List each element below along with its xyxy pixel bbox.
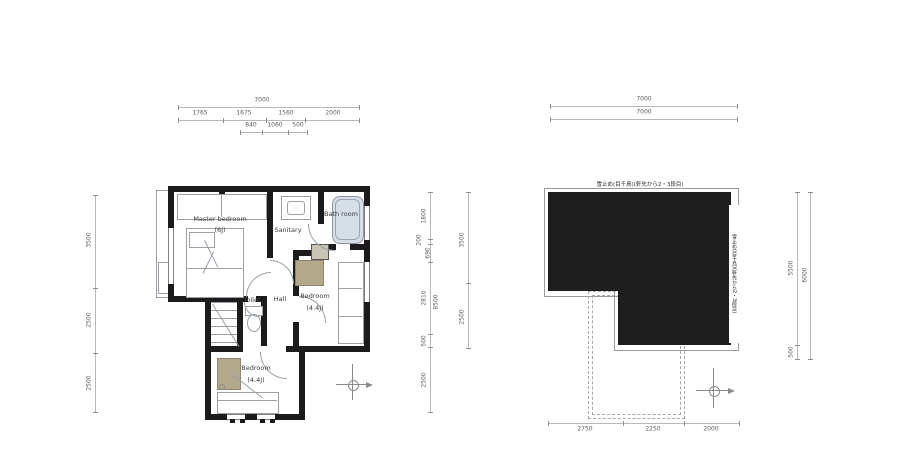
desk <box>295 260 324 286</box>
north-arrow-icon <box>366 382 373 388</box>
dim-label: 2000 <box>325 110 340 117</box>
wall <box>237 302 243 346</box>
dim-tick <box>684 421 685 426</box>
dim-tick <box>288 130 289 135</box>
dim-label: 500 <box>292 122 303 129</box>
dim-line <box>240 132 307 133</box>
dim-line <box>548 423 739 424</box>
dim-tick <box>795 359 800 360</box>
door-arc <box>246 272 271 297</box>
dim-label: 6000 <box>802 267 809 282</box>
dim-tick <box>623 421 624 426</box>
north-arrow-icon <box>728 388 735 394</box>
dim-line <box>178 107 360 108</box>
roof-area <box>618 291 731 345</box>
wall <box>318 192 324 224</box>
dim-tick <box>466 192 471 193</box>
dim-label: 2500 <box>459 309 466 324</box>
dim-label: 1560 <box>278 110 293 117</box>
dim-tick <box>808 359 813 360</box>
wall <box>299 352 305 420</box>
dim-label: 2750 <box>577 426 592 433</box>
dim-tick <box>795 192 800 193</box>
roof-note-top: 雪止め(目千鳥)(軒先から2・3段目) <box>596 180 683 188</box>
dim-label: 2500 <box>86 312 93 327</box>
dim-tick <box>428 412 433 413</box>
wall <box>205 414 227 420</box>
dim-tick <box>428 334 433 335</box>
wall <box>364 302 370 352</box>
dim-tick <box>305 118 306 123</box>
bed <box>338 262 364 344</box>
wall <box>245 414 257 420</box>
north-marker-circle <box>709 386 720 397</box>
roof-note-right: 雪止め(目千鳥)(軒先から2・3段目) <box>729 205 739 343</box>
window-stub <box>240 419 245 423</box>
dim-line <box>550 119 737 120</box>
dim-tick <box>466 348 471 349</box>
dim-label: 690 <box>425 247 432 258</box>
dim-label: 2250 <box>645 426 660 433</box>
wall <box>275 414 305 420</box>
dim-line <box>810 192 811 359</box>
dim-label: 2000 <box>703 426 718 433</box>
window <box>364 262 370 302</box>
dim-label: 3500 <box>86 232 93 247</box>
bed <box>217 392 279 414</box>
window-stub <box>270 419 275 423</box>
dim-line <box>95 195 96 412</box>
dim-label: 2500 <box>421 372 428 387</box>
dim-tick <box>93 353 98 354</box>
dim-tick <box>550 104 551 109</box>
floor-plan-sheet: 7000 1765 1675 1560 2000 840 1060 500 35… <box>0 0 900 458</box>
north-marker-circle <box>348 380 359 391</box>
blanket-line <box>186 268 242 269</box>
dim-line <box>430 192 431 412</box>
room-size-master-bedroom: (6J) <box>214 226 225 234</box>
dim-line <box>550 106 737 107</box>
dim-tick <box>307 130 308 135</box>
room-label-bedroom-lower: Bedroom <box>241 364 270 372</box>
wall <box>350 244 370 250</box>
dim-label: 200 <box>416 234 423 245</box>
room-label-sanitary: Sanitary <box>274 226 301 234</box>
window <box>364 206 370 240</box>
dim-tick <box>178 118 179 123</box>
dim-tick <box>737 117 738 122</box>
dim-label: 3500 <box>459 232 466 247</box>
wall <box>267 192 273 258</box>
dim-tick <box>428 347 433 348</box>
dim-label: 1675 <box>236 110 251 117</box>
room-size-bedroom-right: (4.4J) <box>306 304 323 312</box>
dim-tick <box>737 104 738 109</box>
room-label-master-bedroom: Master bedroom <box>193 215 246 223</box>
dim-tick <box>428 192 433 193</box>
bathtub-inner <box>335 199 360 240</box>
dim-tick <box>428 239 433 240</box>
dim-label: 7000 <box>636 96 651 103</box>
dim-label: 7000 <box>636 109 651 116</box>
door-arc <box>270 260 294 284</box>
dim-tick <box>466 283 471 284</box>
dim-tick <box>428 262 433 263</box>
room-label-hall: Hall <box>274 295 286 303</box>
wall <box>299 346 370 352</box>
dim-tick <box>808 192 813 193</box>
dim-tick <box>550 117 551 122</box>
dim-label: 840 <box>245 122 256 129</box>
dim-tick <box>359 105 360 110</box>
bed-line <box>217 400 277 401</box>
dim-tick <box>93 288 98 289</box>
room-label-toilet: Toilet <box>243 296 260 304</box>
pillow <box>189 232 215 248</box>
roof-area <box>548 192 731 291</box>
dim-label: 500 <box>788 346 795 357</box>
room-size-bedroom-lower: (4.4J) <box>247 376 264 384</box>
dim-tick <box>548 421 549 426</box>
dim-label: 5500 <box>788 260 795 275</box>
dim-line <box>797 192 798 359</box>
dim-line <box>468 192 469 348</box>
room-label-bedroom-right: Bedroom <box>300 292 329 300</box>
window <box>168 228 174 284</box>
dim-tick <box>93 195 98 196</box>
dim-tick <box>428 244 433 245</box>
bed-line <box>338 316 362 317</box>
wall <box>364 192 370 206</box>
knob <box>219 384 225 390</box>
dim-label: 2500 <box>86 375 93 390</box>
dim-label: 500 <box>421 335 428 346</box>
dim-label: 1800 <box>421 208 428 223</box>
dim-tick <box>93 412 98 413</box>
dim-label: 1765 <box>192 110 207 117</box>
closet-divider <box>221 195 222 217</box>
dim-label: 1060 <box>267 122 282 129</box>
room-label-bath: Bath room <box>324 210 358 218</box>
dim-tick <box>240 130 241 135</box>
bed-line <box>338 288 362 289</box>
dim-tick <box>223 118 224 123</box>
dim-tick <box>795 345 800 346</box>
dim-tick <box>262 130 263 135</box>
dim-label: 2810 <box>421 290 428 305</box>
window-stub <box>230 419 235 423</box>
window-stub <box>260 419 265 423</box>
dim-tick <box>359 118 360 123</box>
dim-tick <box>178 105 179 110</box>
dim-label: 8500 <box>433 294 440 309</box>
dim-label: 7000 <box>254 97 269 104</box>
wall <box>168 192 174 228</box>
washing-machine-drum <box>287 201 305 215</box>
dim-tick <box>739 421 740 426</box>
